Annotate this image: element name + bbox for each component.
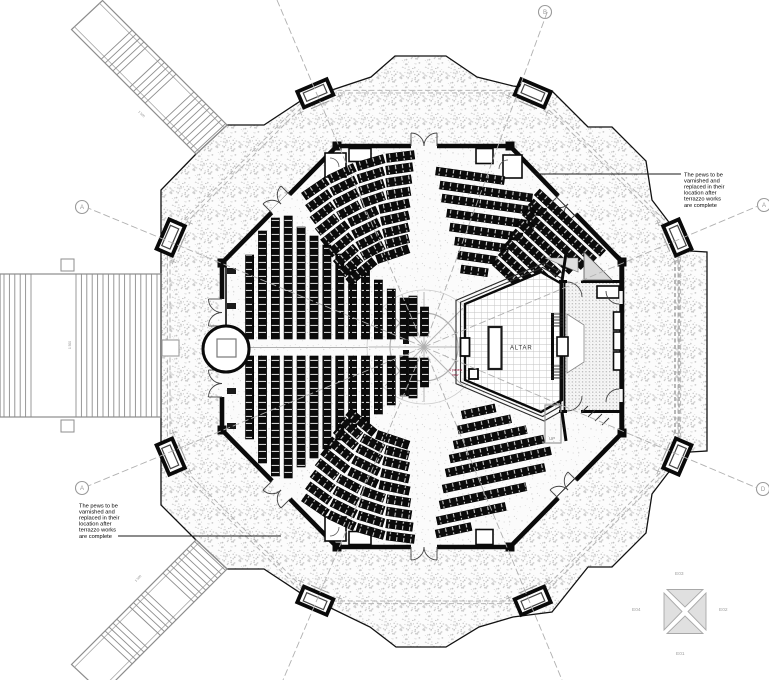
svg-text:E04: E04 [632, 607, 641, 613]
svg-text:4 panels: 4 panels [449, 368, 462, 372]
svg-text:are complete: are complete [79, 534, 112, 540]
svg-text:UP: UP [549, 436, 555, 441]
svg-text:E03: E03 [675, 571, 684, 577]
svg-text:ALTAR: ALTAR [510, 346, 532, 352]
svg-text:varnished and: varnished and [79, 510, 115, 516]
svg-text:A: A [80, 486, 84, 492]
svg-text:1 500: 1 500 [68, 341, 72, 349]
svg-text:terrazzo works: terrazzo works [79, 528, 116, 534]
svg-text:E01: E01 [676, 651, 685, 657]
svg-text:are complete: are complete [684, 203, 717, 209]
svg-text:The pews to be: The pews to be [684, 173, 723, 179]
svg-text:D: D [761, 487, 766, 493]
svg-text:replaced in their: replaced in their [684, 185, 725, 191]
svg-text:new: new [452, 373, 459, 377]
svg-text:location after: location after [79, 522, 112, 528]
svg-text:terrazzo works: terrazzo works [684, 197, 721, 203]
svg-text:A: A [80, 205, 84, 211]
svg-text:A: A [762, 203, 766, 209]
svg-text:E02: E02 [719, 607, 728, 613]
